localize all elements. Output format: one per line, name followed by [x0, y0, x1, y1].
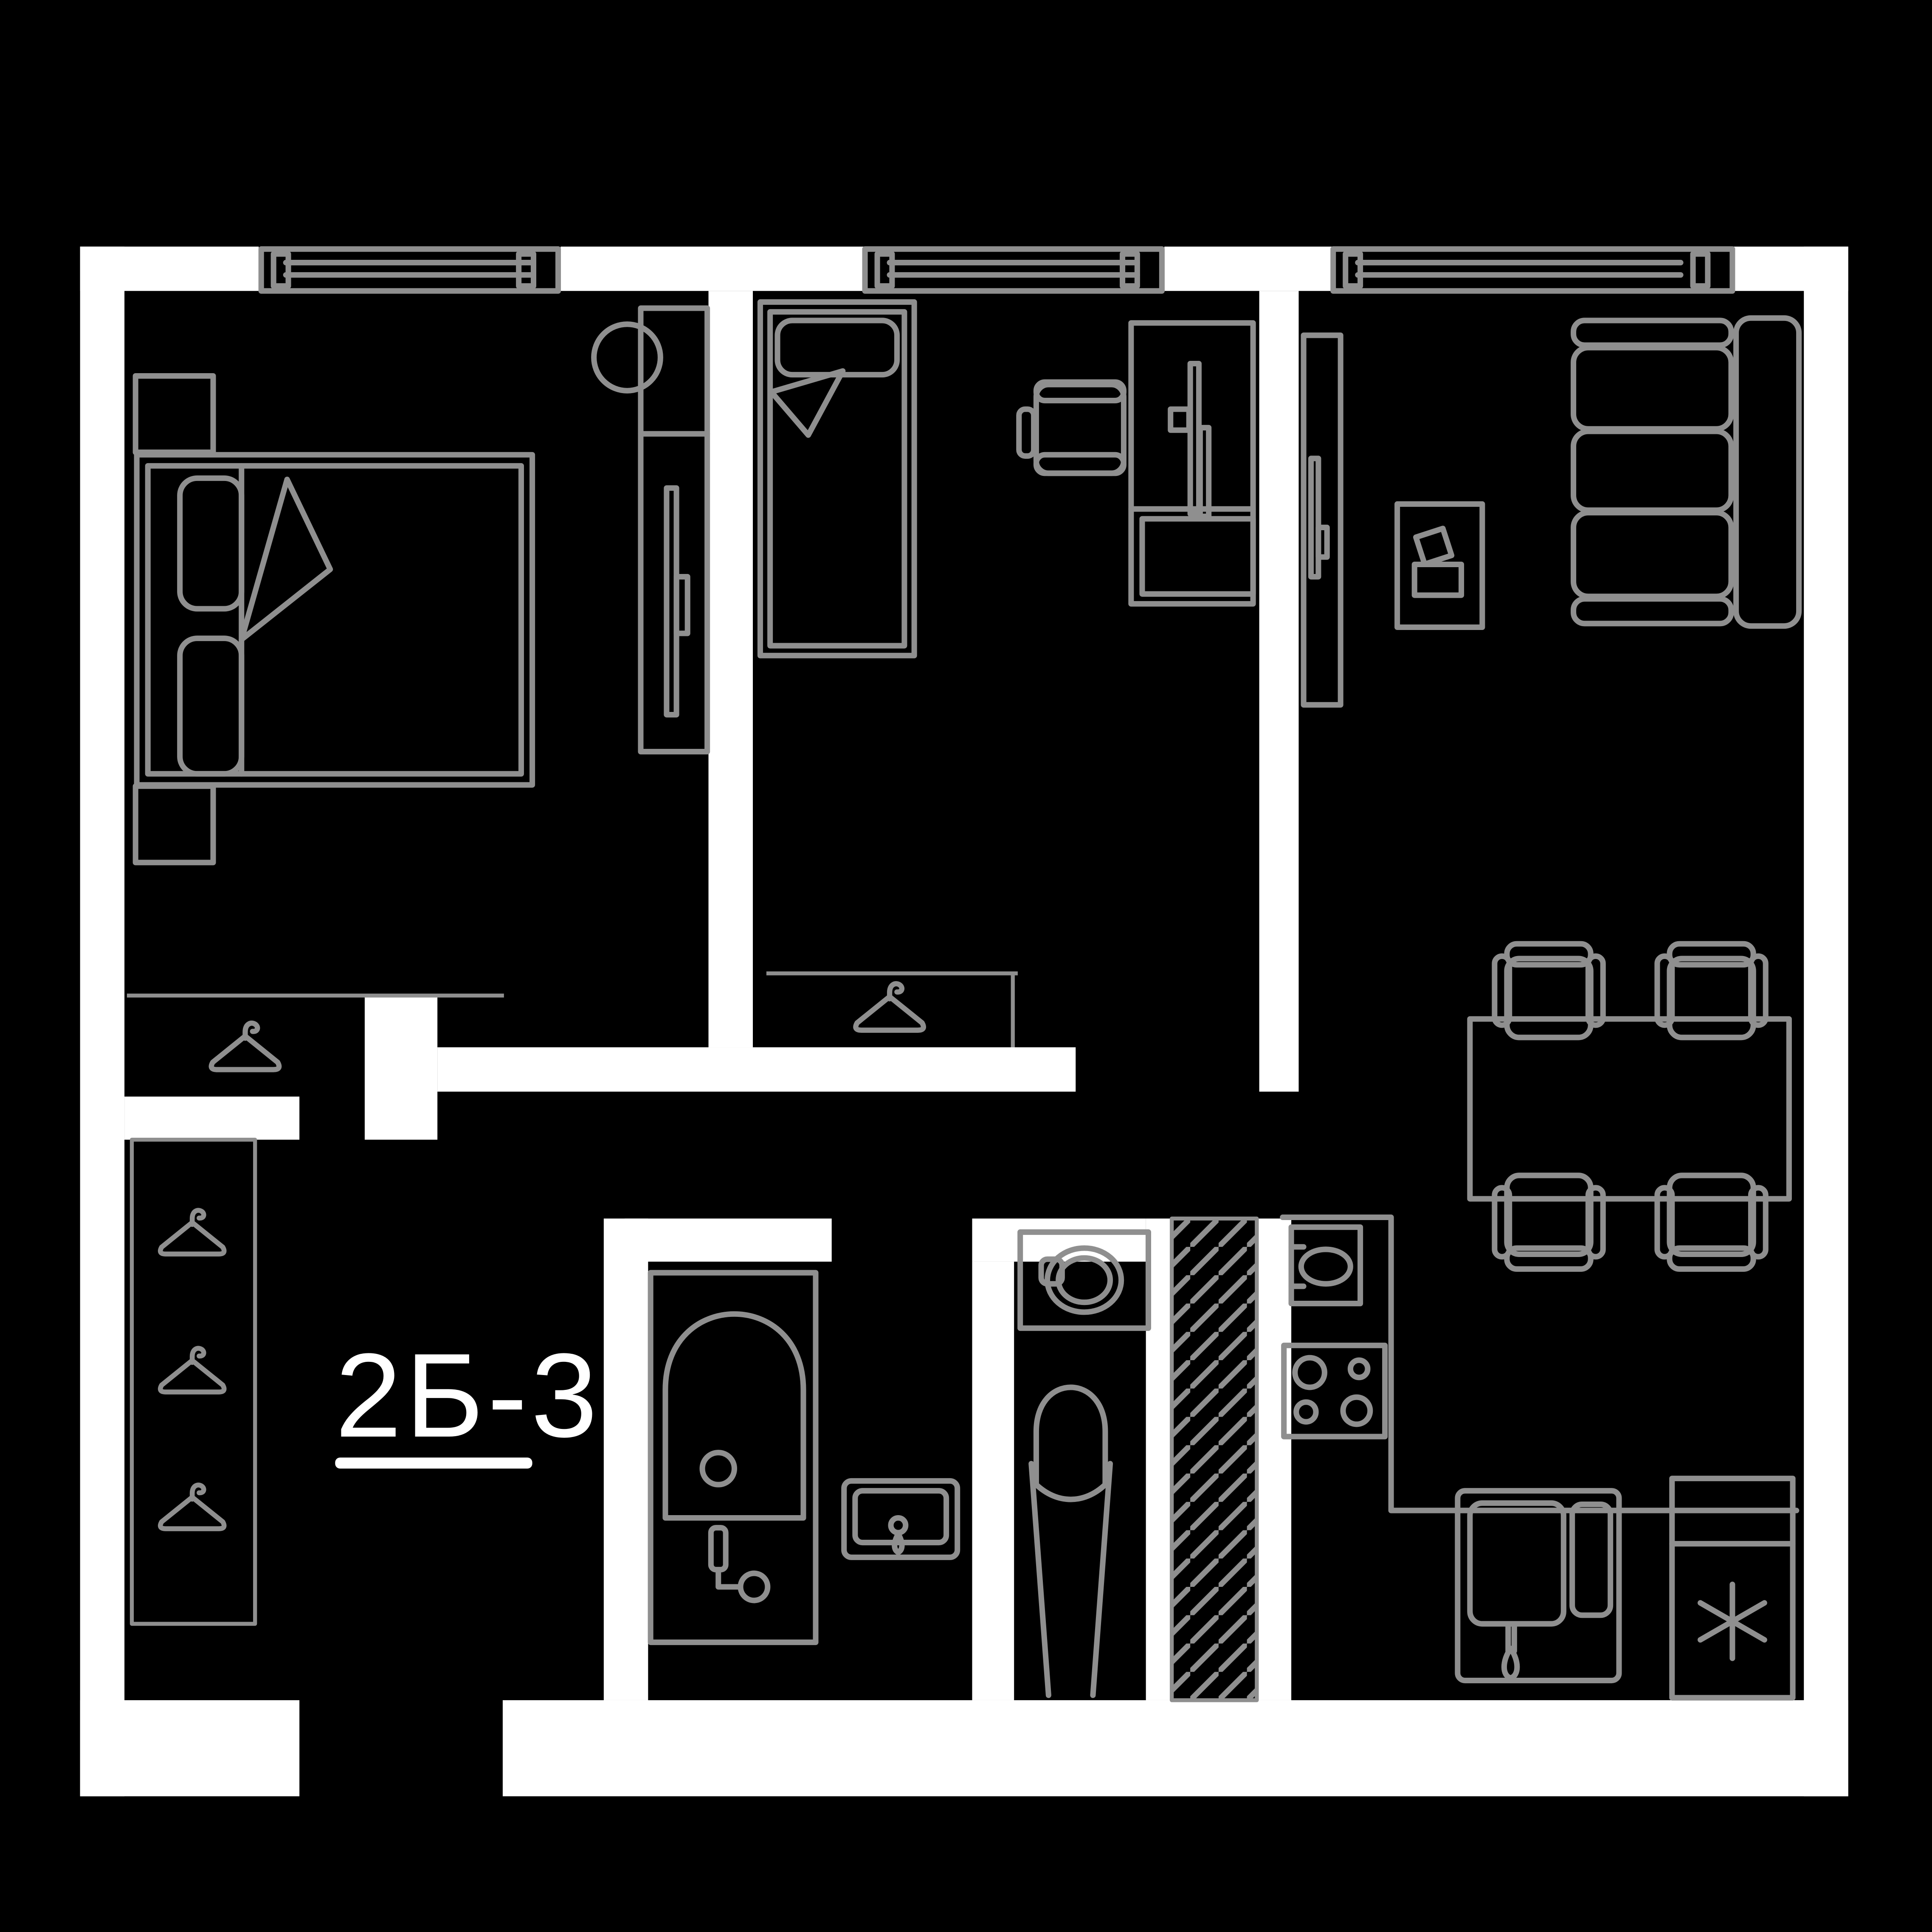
- wall-left: [80, 247, 124, 1796]
- floor-plan-svg: 2Б-3: [0, 0, 1932, 1932]
- unit-label-text: 2Б-3: [335, 1328, 601, 1462]
- wall-children-bottom: [437, 1047, 1076, 1091]
- unit-label: 2Б-3: [335, 1328, 601, 1468]
- wall-bottom-left: [80, 1700, 300, 1796]
- wall-bedroom-closet-corner: [365, 996, 437, 1140]
- wall-top-2: [560, 247, 865, 291]
- wall-top-3: [1164, 247, 1333, 291]
- wall-children-living: [1259, 291, 1299, 1091]
- wall-bottom-main: [503, 1700, 1848, 1796]
- wall-bathroom-left: [604, 1218, 648, 1700]
- wall-bathroom-wc: [972, 1262, 1014, 1700]
- ventilation-shaft: [1172, 1218, 1257, 1700]
- wall-right: [1804, 247, 1848, 1796]
- unit-label-underline: [335, 1457, 532, 1468]
- wall-bedroom-children: [709, 291, 753, 1047]
- wall-hallway-top: [124, 1097, 299, 1140]
- floor-plan-page: 2Б-3: [0, 0, 1932, 1932]
- wall-bathroom-top-1: [625, 1218, 832, 1262]
- wall-shaft-right: [1257, 1218, 1291, 1700]
